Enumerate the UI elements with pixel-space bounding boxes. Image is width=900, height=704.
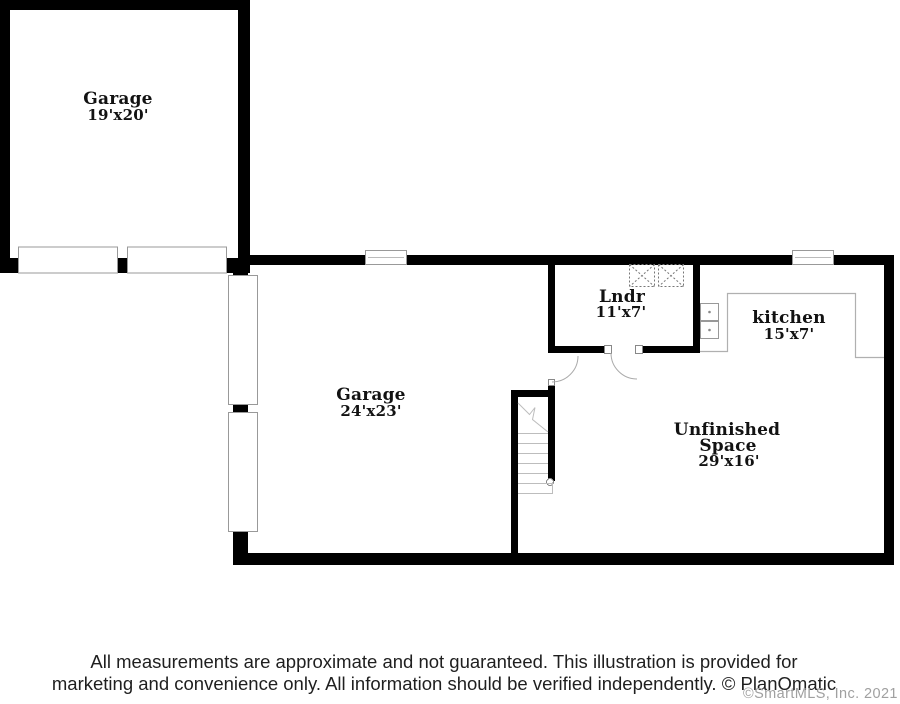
window-symbol-icon bbox=[366, 251, 407, 265]
laundry-appliances bbox=[630, 265, 684, 287]
door-post bbox=[605, 346, 612, 354]
door-swing-arc-icon bbox=[611, 353, 637, 379]
wall-segment bbox=[548, 263, 555, 353]
door-post bbox=[549, 380, 555, 386]
disclaimer-line-1: All measurements are approximate and not… bbox=[0, 651, 888, 673]
washer-dryer-icon bbox=[630, 265, 655, 287]
garage-door-panel-icon bbox=[128, 247, 227, 273]
door-post bbox=[636, 346, 643, 354]
wall-segment bbox=[548, 382, 555, 481]
room-label-kitchen-dims: 15'x7' bbox=[764, 325, 815, 343]
wall-segment bbox=[548, 346, 605, 353]
wall-segment bbox=[511, 390, 518, 553]
wall-segment bbox=[693, 263, 700, 353]
wall-segment bbox=[0, 0, 10, 273]
doors bbox=[552, 353, 637, 382]
wall-segment bbox=[0, 0, 250, 10]
washer-dryer-icon bbox=[659, 265, 684, 287]
mls-copyright: ©SmartMLS, Inc. 2021 bbox=[743, 686, 898, 702]
room-label-garage-lower-dims: 24'x23' bbox=[340, 402, 401, 420]
wall-segment bbox=[233, 553, 894, 565]
garage-door-panel-icon bbox=[229, 413, 258, 532]
room-label-unfinished-dims: 29'x16' bbox=[698, 452, 759, 470]
wall-segment bbox=[884, 255, 894, 565]
garage-doors bbox=[19, 247, 258, 532]
room-label-laundry-dims: 11'x7' bbox=[596, 303, 647, 321]
garage-door-panel-icon bbox=[19, 247, 118, 273]
walls bbox=[0, 0, 894, 565]
window-symbol-icon bbox=[793, 251, 834, 265]
wall-segment bbox=[238, 0, 250, 265]
room-label-garage-upper-dims: 19'x20' bbox=[87, 106, 148, 124]
door-posts bbox=[547, 346, 643, 486]
double-sink-icon bbox=[701, 304, 719, 339]
stair-break-line bbox=[518, 403, 548, 432]
door-swing-arc-icon bbox=[552, 356, 578, 382]
garage-door-panel-icon bbox=[229, 276, 258, 405]
floorplan-canvas: Garage 19'x20' Garage 24'x23' Lndr 11'x7… bbox=[0, 0, 900, 704]
wall-segment bbox=[637, 346, 700, 353]
